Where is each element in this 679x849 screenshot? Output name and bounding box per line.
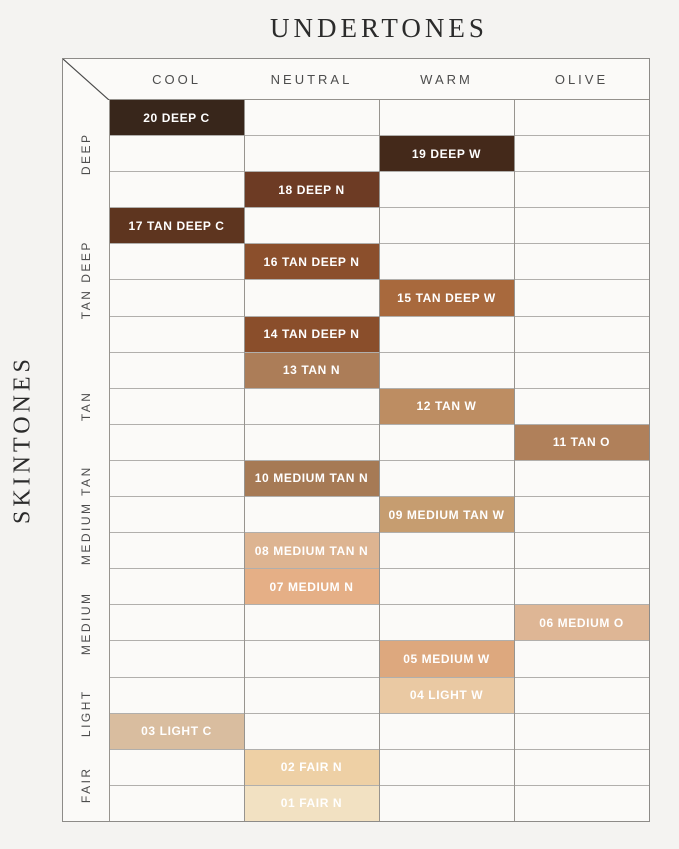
swatch-15-tan-deep-w: 15 TAN DEEP W [379, 280, 514, 315]
swatch-06-medium-o: 06 MEDIUM O [514, 605, 649, 640]
swatch-19-deep-w: 19 DEEP W [379, 136, 514, 171]
skintone-group-fair: FAIR [63, 749, 109, 821]
swatch-03-light-c: 03 LIGHT C [109, 714, 244, 749]
swatch-13-tan-n: 13 TAN N [244, 353, 379, 388]
column-gridline [514, 100, 515, 821]
skintone-group-deep: DEEP [63, 100, 109, 208]
undertone-header-warm: WARM [379, 59, 514, 99]
skintone-group-tan-deep: TAN DEEP [63, 208, 109, 352]
swatch-02-fair-n: 02 FAIR N [244, 750, 379, 785]
corner-diagonal [63, 59, 109, 100]
skintone-group-light: LIGHT [63, 677, 109, 749]
swatch-10-medium-tan-n: 10 MEDIUM TAN N [244, 461, 379, 496]
swatch-04-light-w: 04 LIGHT W [379, 678, 514, 713]
skintone-group-medium: MEDIUM [63, 569, 109, 677]
diagonal-line-icon [63, 59, 109, 100]
shade-matrix: COOL NEUTRAL WARM OLIVE DEEP TAN DEEP TA… [62, 58, 650, 822]
swatch-17-tan-deep-c: 17 TAN DEEP C [109, 208, 244, 243]
skintone-label-column: DEEP TAN DEEP TAN MEDIUM TAN MEDIUM LIGH… [63, 100, 109, 821]
swatch-16-tan-deep-n: 16 TAN DEEP N [244, 244, 379, 279]
undertones-title: UNDERTONES [108, 13, 650, 44]
undertone-header-cool: COOL [109, 59, 244, 99]
swatch-14-tan-deep-n: 14 TAN DEEP N [244, 317, 379, 352]
swatch-08-medium-tan-n: 08 MEDIUM TAN N [244, 533, 379, 568]
undertone-header-neutral: NEUTRAL [244, 59, 379, 99]
column-gridline [244, 100, 245, 821]
shade-chart: UNDERTONES SKINTONES COOL NEUTRAL WARM O… [0, 0, 679, 849]
swatch-01-fair-n: 01 FAIR N [244, 786, 379, 821]
swatch-07-medium-n: 07 MEDIUM N [244, 569, 379, 604]
column-gridline [109, 100, 110, 821]
swatch-12-tan-w: 12 TAN W [379, 389, 514, 424]
swatch-20-deep-c: 20 DEEP C [109, 100, 244, 135]
skintone-group-medium-tan: MEDIUM TAN [63, 461, 109, 569]
swatch-05-medium-w: 05 MEDIUM W [379, 641, 514, 676]
swatch-11-tan-o: 11 TAN O [514, 425, 649, 460]
column-gridline [379, 100, 380, 821]
swatch-09-medium-tan-w: 09 MEDIUM TAN W [379, 497, 514, 532]
skintones-axis-title: SKINTONES [2, 58, 44, 822]
skintone-group-tan: TAN [63, 352, 109, 460]
swatch-18-deep-n: 18 DEEP N [244, 172, 379, 207]
undertone-header-row: COOL NEUTRAL WARM OLIVE [109, 59, 649, 100]
shade-grid: 20 DEEP C 19 DEEP W 18 DEEP N 17 TAN DEE… [109, 100, 649, 821]
undertone-header-olive: OLIVE [514, 59, 649, 99]
